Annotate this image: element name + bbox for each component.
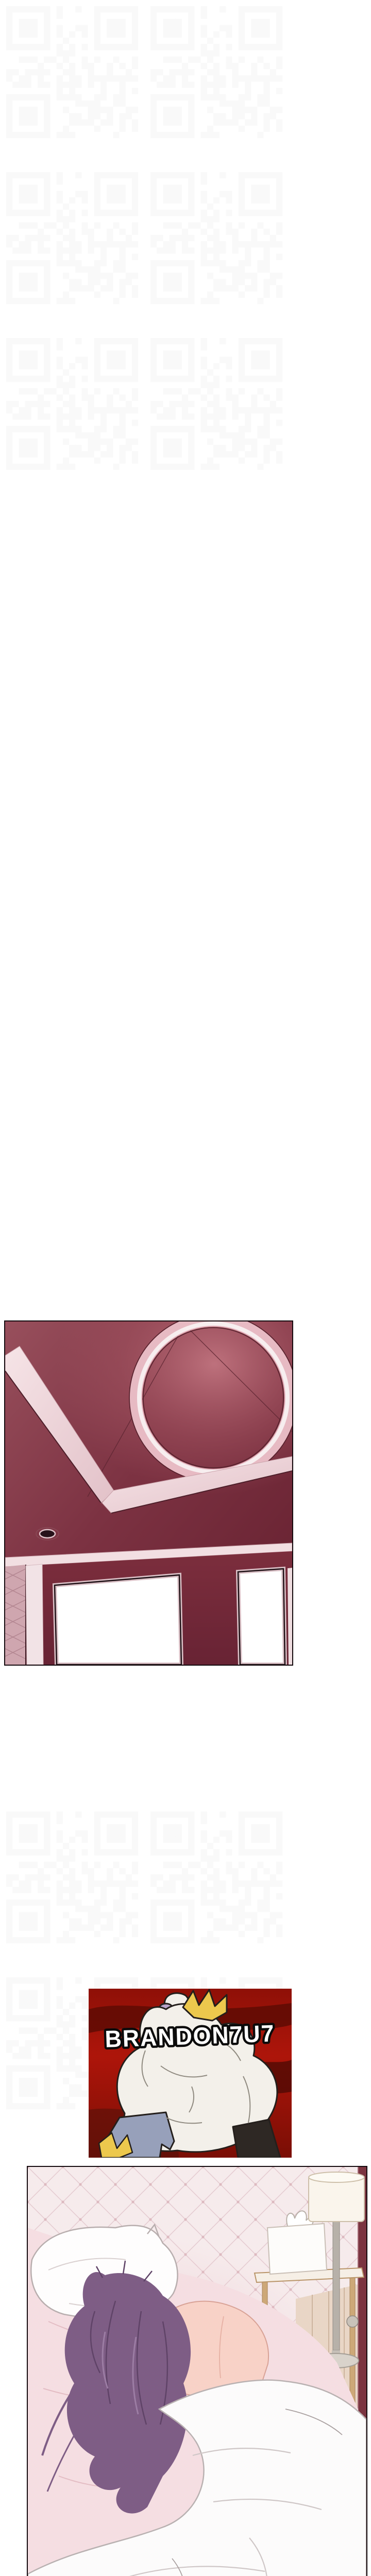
hatched-column: [5, 1565, 26, 1665]
panel-ceiling-scene: [4, 1320, 293, 1666]
logo-art: BRANDON7U7: [89, 1989, 292, 2158]
recessed-light-icon: [36, 1528, 59, 1540]
ceiling-art: [5, 1321, 292, 1665]
panel-bedroom-scene: [27, 2166, 367, 2576]
wall-sliver: [26, 1564, 43, 1665]
wall-opening-right: [238, 1569, 285, 1665]
webtoon-strip[interactable]: BRANDON7U7: [0, 0, 371, 2576]
qr-watermark-band-top: [0, 0, 371, 510]
brandon7u7-logo: BRANDON7U7: [89, 1989, 292, 2158]
bedroom-art: [28, 2167, 366, 2576]
wall-opening-left: [55, 1575, 181, 1665]
